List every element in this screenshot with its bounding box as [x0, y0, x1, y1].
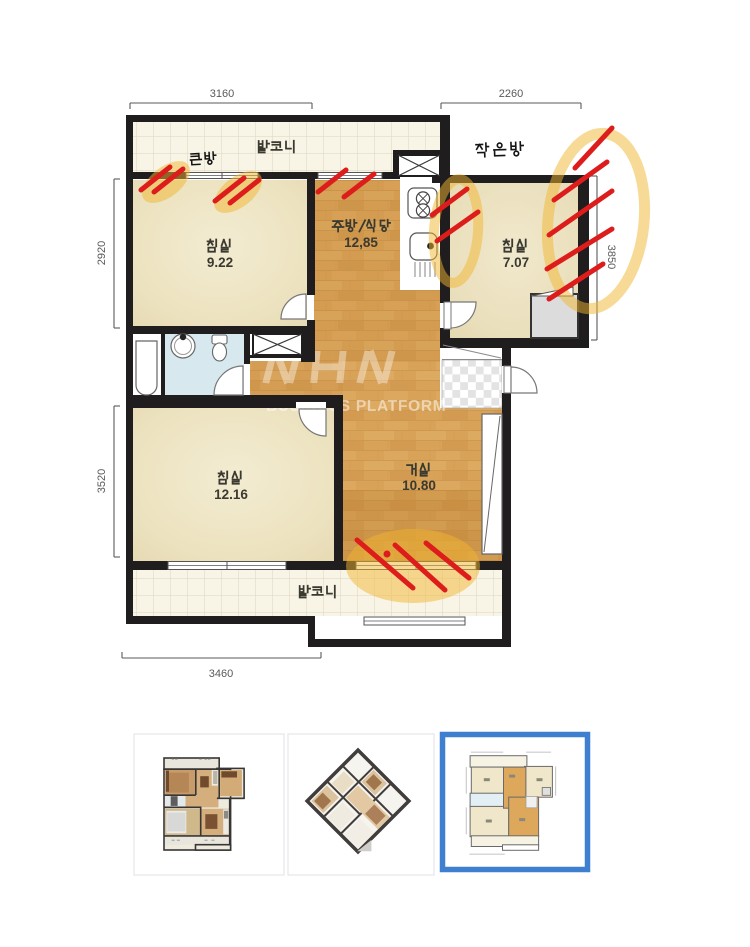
svg-text:12.16: 12.16	[214, 487, 248, 502]
svg-text:12,85: 12,85	[344, 235, 378, 250]
svg-text:3460: 3460	[209, 668, 233, 680]
svg-text:10.80: 10.80	[402, 478, 436, 493]
svg-text:9.22: 9.22	[207, 255, 233, 270]
svg-text:2260: 2260	[499, 88, 523, 100]
svg-text:2920: 2920	[96, 241, 108, 265]
svg-text:3520: 3520	[96, 469, 108, 493]
svg-text:3850: 3850	[605, 245, 617, 269]
svg-text:3160: 3160	[210, 88, 234, 100]
svg-text:7.07: 7.07	[503, 255, 529, 270]
